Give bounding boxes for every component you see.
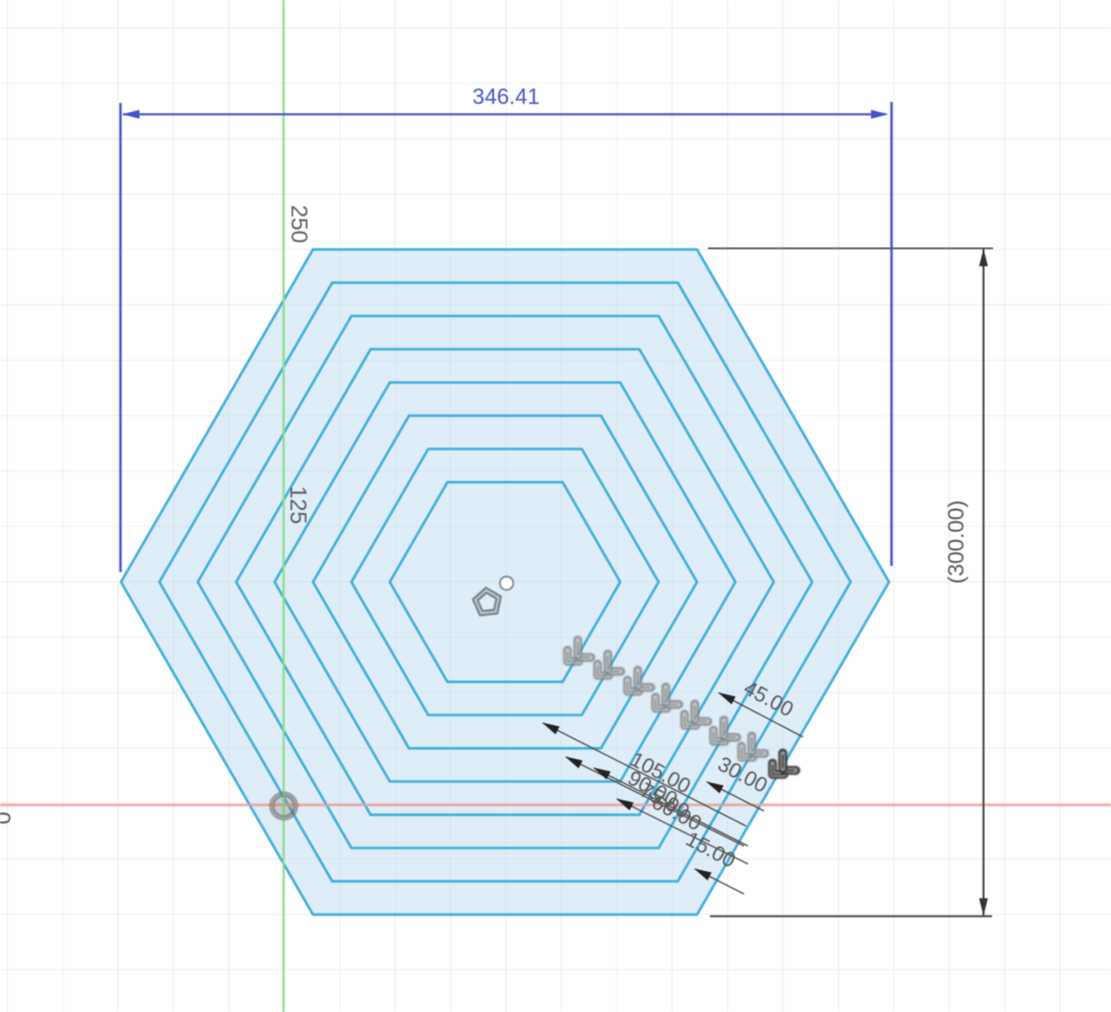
svg-text:125: 125 <box>285 486 311 524</box>
svg-text:346.41: 346.41 <box>472 84 539 109</box>
svg-text:250: 250 <box>286 205 312 243</box>
svg-text:(300.00): (300.00) <box>943 500 968 584</box>
svg-text:0: 0 <box>0 812 15 825</box>
